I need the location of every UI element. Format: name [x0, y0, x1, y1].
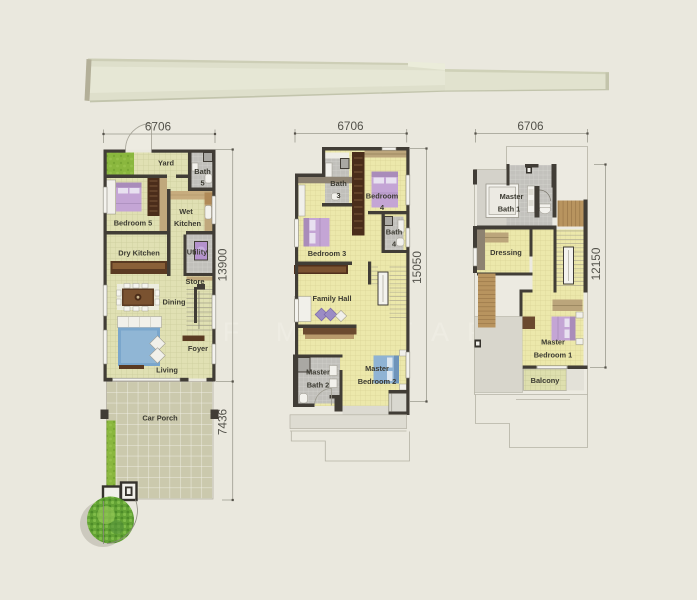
svg-text:12150: 12150: [589, 247, 603, 280]
svg-text:Store: Store: [186, 277, 205, 286]
svg-text:6706: 6706: [517, 119, 544, 133]
svg-text:6706: 6706: [145, 120, 172, 134]
svg-text:6706: 6706: [337, 119, 364, 133]
svg-text:3: 3: [336, 191, 340, 200]
svg-text:Master: Master: [541, 338, 565, 347]
svg-text:F: F: [223, 317, 240, 347]
svg-text:Bedroom: Bedroom: [366, 192, 399, 201]
svg-text:Master: Master: [500, 192, 524, 201]
svg-text:Living: Living: [156, 366, 178, 375]
svg-text:Foyer: Foyer: [188, 344, 208, 353]
svg-text:Bath: Bath: [330, 179, 347, 188]
svg-text:Bath: Bath: [386, 228, 403, 237]
svg-text:Dry Kitchen: Dry Kitchen: [118, 249, 160, 258]
svg-text:Car Porch: Car Porch: [142, 414, 178, 423]
svg-text:Master: Master: [306, 368, 330, 377]
svg-text:Bath: Bath: [194, 167, 211, 176]
svg-text:5: 5: [200, 179, 204, 188]
svg-text:Master: Master: [365, 364, 389, 373]
svg-text:Bath 1: Bath 1: [498, 205, 521, 214]
svg-text:Bedroom 5: Bedroom 5: [114, 219, 153, 228]
svg-text:Kitchen: Kitchen: [174, 219, 202, 228]
svg-text:A: A: [431, 317, 449, 347]
svg-text:Bedroom 1: Bedroom 1: [534, 351, 573, 360]
svg-text:Dining: Dining: [163, 298, 186, 307]
svg-text:Family Hall: Family Hall: [312, 294, 351, 303]
svg-text:Balcony: Balcony: [531, 376, 561, 385]
svg-text:15050: 15050: [410, 251, 424, 284]
svg-text:Utility: Utility: [187, 248, 208, 257]
svg-text:Bedroom 2: Bedroom 2: [358, 377, 397, 386]
svg-text:Yard: Yard: [158, 159, 175, 168]
svg-text:Dressing: Dressing: [490, 248, 522, 257]
svg-text:13900: 13900: [216, 248, 230, 281]
svg-text:Bedroom 3: Bedroom 3: [308, 249, 347, 258]
svg-text:Bath 2: Bath 2: [307, 381, 330, 390]
svg-text:Wet: Wet: [179, 207, 193, 216]
